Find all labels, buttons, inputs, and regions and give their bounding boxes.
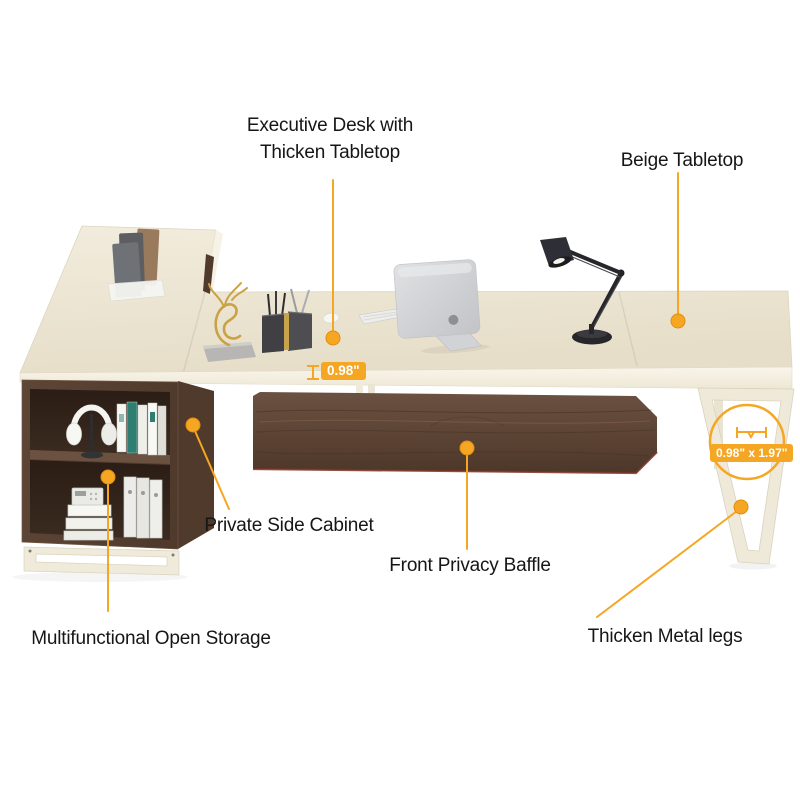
cabinet-base-frame <box>24 547 179 575</box>
right-leg-frame <box>698 388 794 564</box>
product-infographic: Executive Desk with Thicken Tabletop Bei… <box>0 0 800 800</box>
binders <box>124 477 162 538</box>
callout-label-private-side-cabinet: Private Side Cabinet <box>204 512 373 539</box>
callout-label-front-privacy-baffle: Front Privacy Baffle <box>389 552 550 579</box>
callout-label-beige-tabletop: Beige Tabletop <box>621 147 744 174</box>
books <box>117 402 166 455</box>
callout-label-thicken-metal-legs: Thicken Metal legs <box>588 623 743 650</box>
callout-label-executive-desk: Executive Desk with Thicken Tabletop <box>247 112 413 166</box>
privacy-baffle <box>253 392 657 473</box>
calculator <box>72 488 103 505</box>
callout-text-line1: Executive Desk with <box>247 112 413 139</box>
badge-tabletop-thickness: 0.98" <box>321 362 366 380</box>
callout-label-multifunctional-open-storage: Multifunctional Open Storage <box>31 625 270 652</box>
callout-text-line2: Thicken Tabletop <box>247 139 413 166</box>
paper-trays <box>64 505 113 540</box>
side-cabinet <box>22 380 214 575</box>
badge-leg-dimensions: 0.98" x 1.97" <box>710 444 793 462</box>
